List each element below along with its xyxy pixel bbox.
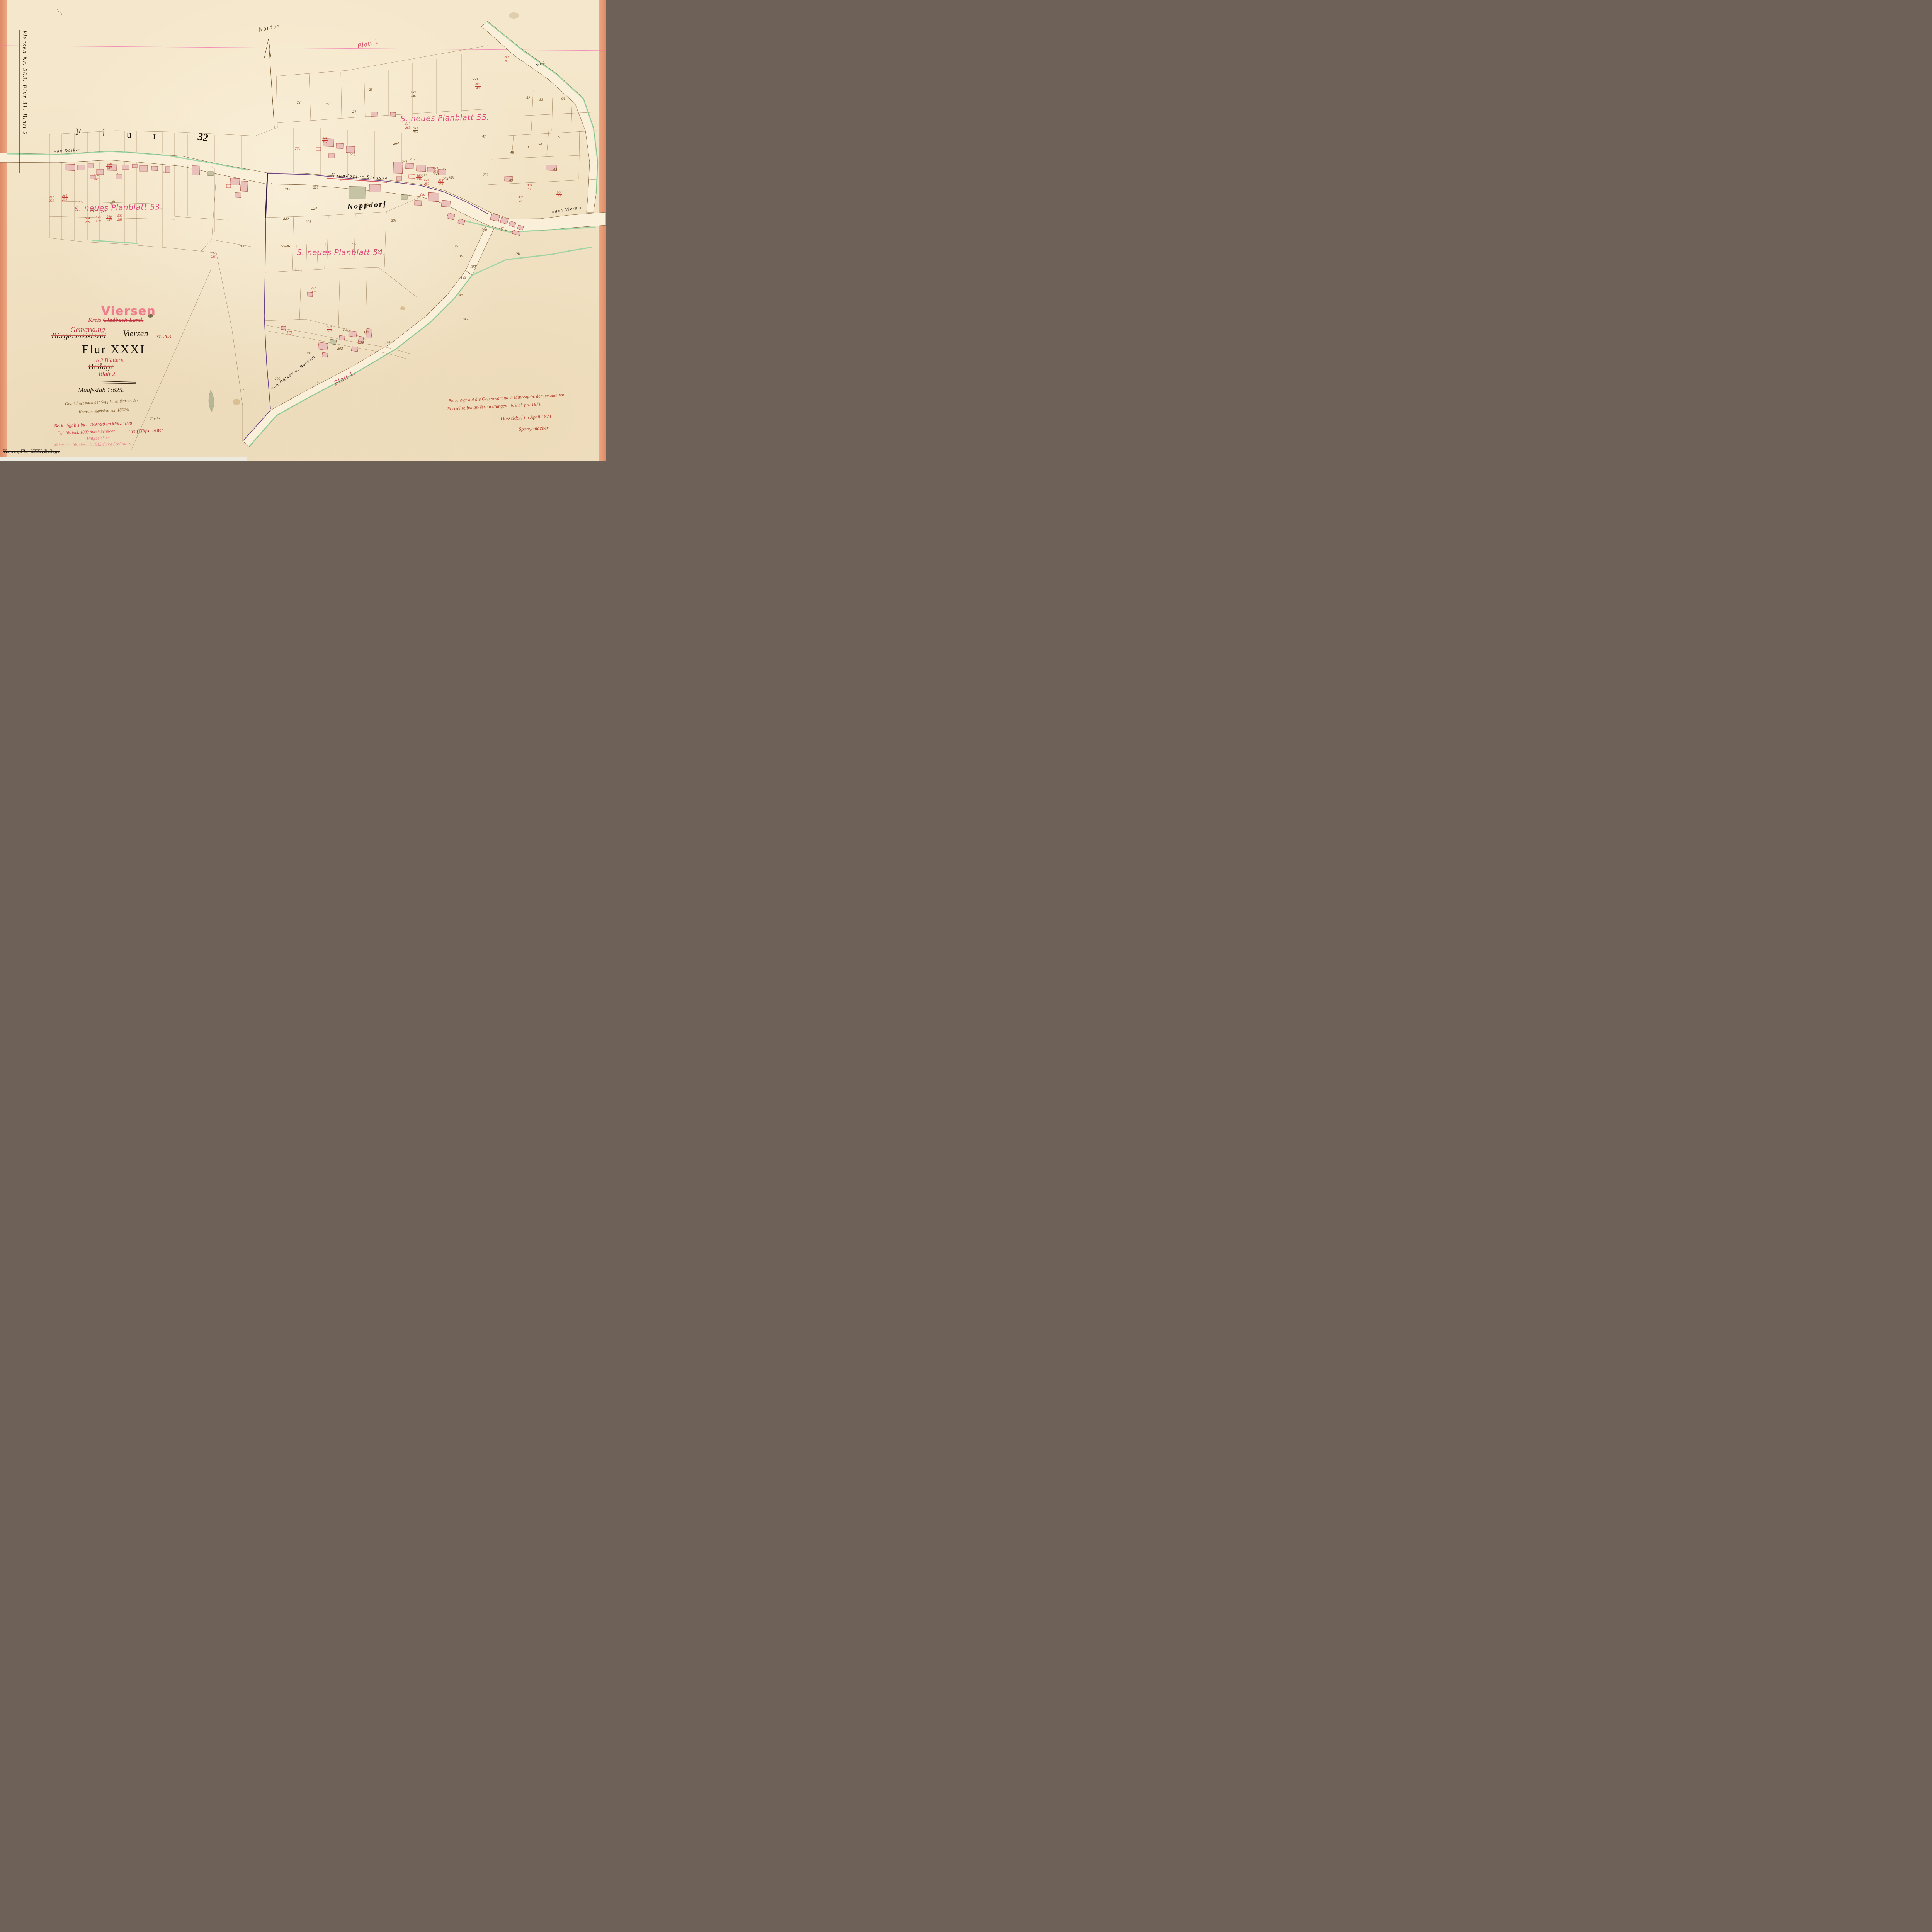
building xyxy=(88,164,94,168)
parcel-number: 59 xyxy=(556,136,560,140)
building xyxy=(132,164,137,168)
building xyxy=(390,112,396,117)
building xyxy=(351,347,358,352)
parcel-number: 547201 xyxy=(327,326,332,333)
parcel-number: × xyxy=(211,166,213,169)
pencil-scribble xyxy=(57,9,62,15)
parcel-number: 199 xyxy=(358,341,364,345)
parcel-number: 463213 xyxy=(322,137,328,144)
parcel-number: × xyxy=(440,190,442,193)
parcel-number: 219 xyxy=(285,188,290,192)
parcel-number: 49 xyxy=(509,179,513,183)
corner-archive-label: Viersen, Flur XXXI, Beilage xyxy=(3,448,60,454)
parcel-number: 209 xyxy=(275,378,280,381)
building xyxy=(349,331,357,337)
map-label-flur-number: 32 xyxy=(196,131,209,145)
building xyxy=(336,143,343,149)
parcel-number: 206 xyxy=(306,352,311,356)
building xyxy=(441,200,450,207)
parcel-number: 276 xyxy=(295,147,300,151)
nr-label: Nr. 203. xyxy=(155,334,173,340)
parcel-number: 214 xyxy=(239,245,244,249)
buergermeisterei-struck: Bürgermeisterei xyxy=(51,331,106,340)
parcel-number: × xyxy=(117,172,119,175)
scale-label: Maafsstab 1:625. xyxy=(78,386,124,394)
parcel-number: 526259 xyxy=(424,178,430,185)
building xyxy=(371,112,378,117)
parcel-number: 289 xyxy=(78,201,83,205)
parcel-number: 196 xyxy=(385,342,390,345)
drawing-note-signature: Fuchs xyxy=(150,417,160,422)
blatt2-label: Blatt 2. xyxy=(99,371,117,378)
parcel-number: 23 xyxy=(326,103,330,107)
parcel-number: × xyxy=(283,379,285,382)
building xyxy=(393,162,403,174)
parcel-number: 255 xyxy=(442,168,447,172)
building xyxy=(192,166,200,175)
parcel-number: 51 xyxy=(526,146,529,150)
parcel-number: 192 xyxy=(453,245,458,249)
parcel-number: 194 xyxy=(457,294,463,298)
building xyxy=(151,166,158,171)
building xyxy=(165,167,170,173)
parcel-number: 517265 xyxy=(405,122,411,129)
building xyxy=(230,178,240,185)
parcel-number: 36357 xyxy=(527,184,532,190)
parcel-number: 559247 xyxy=(106,163,112,170)
buergermeisterei-label: Bürgermeisterei xyxy=(51,331,106,341)
cadastral-map-sheet: Flur32NordenBlatt 1.Blatt 1.s. neues Pla… xyxy=(0,0,606,461)
parcel-number: 54 xyxy=(538,143,542,147)
parcel-number: 197 xyxy=(364,331,369,335)
parcel-number: 525258 xyxy=(438,179,444,186)
building xyxy=(346,146,355,153)
parcel-number: 524358 xyxy=(433,166,439,173)
parcel-number: 36146 xyxy=(518,196,524,202)
boundary-green xyxy=(8,22,598,446)
parcel-number: 202 xyxy=(337,347,343,351)
parcel-number: 190 xyxy=(470,265,476,269)
building xyxy=(77,165,85,170)
parcel-number: 282 xyxy=(101,211,106,214)
building xyxy=(322,352,328,357)
building xyxy=(349,187,366,199)
parcel-number: 367239 xyxy=(49,195,54,202)
parcel-number: 258 xyxy=(433,173,439,177)
parcel-number: 290 xyxy=(481,229,487,233)
parcel-number: 52 xyxy=(526,97,530,100)
margin-side-label: Viersen Nr. 203. Flur 31. Blatt 2. xyxy=(21,30,28,138)
parcel-number: 191 xyxy=(459,255,465,259)
parcel-number: 539283 xyxy=(117,214,123,221)
stain xyxy=(400,306,405,310)
ort-label: Viersen xyxy=(123,328,148,338)
building xyxy=(140,165,148,171)
building xyxy=(409,174,415,179)
parcel-number: 550 xyxy=(472,78,478,82)
parcel-number: 254 xyxy=(443,178,448,182)
parcel-number: 36457 xyxy=(556,191,562,198)
building xyxy=(287,331,292,335)
parcel-number: 269 xyxy=(350,154,355,158)
parcel-number: 540283 xyxy=(106,215,112,222)
parcel-number: 22 xyxy=(297,101,301,105)
parcel-number: 743236 xyxy=(210,251,216,258)
parcel-number: × xyxy=(317,381,319,384)
building xyxy=(458,219,465,225)
map-label-planblatt54: S. neues Planblatt 54. xyxy=(297,248,386,257)
parcel-number: 225 xyxy=(306,221,311,224)
building xyxy=(240,181,248,192)
beilage-struck: Beilage xyxy=(88,362,114,372)
parcel-number: 556247 xyxy=(94,173,99,180)
parcel-number: 218 xyxy=(313,186,318,190)
parcel-number: 366239 xyxy=(62,194,68,201)
parcel-number: 222 xyxy=(373,250,379,254)
building xyxy=(316,147,321,151)
parcel-number: × xyxy=(270,182,272,185)
map-label-planblatt53: s. neues Planblatt 53. xyxy=(75,202,163,213)
building xyxy=(122,165,129,170)
building xyxy=(396,177,402,180)
parcel-number: 262 xyxy=(410,158,415,162)
kreis-struck: Gladbach-Land. xyxy=(103,317,143,323)
parcel-number: 535259 xyxy=(95,216,101,223)
parcel-number: 217246 xyxy=(413,127,418,134)
building xyxy=(318,342,328,350)
building xyxy=(208,172,213,176)
parcel-number: 184 xyxy=(515,253,520,257)
parcel-number: 48 xyxy=(510,151,514,155)
blatt2-underline xyxy=(97,381,136,384)
kreis-line: Kreis Gladbach-Land. xyxy=(88,317,143,324)
parcel-number: 534259 xyxy=(85,216,90,223)
parcel-number: 43 xyxy=(553,168,557,172)
parcel-number: 777202 xyxy=(311,286,316,293)
parcel-number: 46546 xyxy=(475,83,481,90)
north-arrow xyxy=(264,39,274,128)
parcel-number: 236 xyxy=(420,193,425,197)
parcel-number: 223 xyxy=(280,245,285,249)
parcel-number: 253246 xyxy=(410,90,416,97)
road-noppdorfer-strasse xyxy=(0,151,606,231)
parcel-number: 200 xyxy=(343,328,348,332)
parcel-number: 29945 xyxy=(503,55,509,62)
parcel-number: 545211 xyxy=(281,325,287,332)
parcel-number: 264 xyxy=(393,142,399,146)
stain xyxy=(509,12,519,19)
building xyxy=(235,193,241,198)
parcel-number: 203 xyxy=(391,219,396,223)
map-label-planblatt55: S. neues Planblatt 55. xyxy=(400,112,489,123)
building xyxy=(417,165,426,172)
parcel-number: 53 xyxy=(539,99,543,102)
building xyxy=(369,184,380,192)
parcel-number: × xyxy=(340,179,342,182)
parcel-number: 60 xyxy=(561,98,565,102)
road-von-duelken-bockert xyxy=(243,270,472,447)
parcel-number: 220 xyxy=(283,218,289,221)
building xyxy=(339,335,345,340)
parcel-number: 261 xyxy=(402,161,407,165)
building xyxy=(447,213,455,220)
parcel-number: × xyxy=(406,182,408,185)
kreis-prefix: Kreis xyxy=(88,317,103,323)
viersen-stamp: Viersen xyxy=(101,304,156,318)
parcel-number: 232 xyxy=(364,203,369,207)
parcel-number: 25 xyxy=(369,88,373,92)
building xyxy=(328,154,335,158)
stain xyxy=(233,399,240,405)
parcel-number: 253 xyxy=(448,177,454,180)
parcel-number: 252 xyxy=(483,174,488,178)
parcel-number: 360259 xyxy=(416,174,422,181)
building xyxy=(428,192,439,201)
building xyxy=(330,339,337,345)
parcel-number: × xyxy=(243,388,245,391)
parcel-number: 283 xyxy=(90,210,95,214)
parcel-number: 259 xyxy=(422,175,427,179)
parcel-number: 193 xyxy=(461,276,466,280)
parcel-number: 24 xyxy=(352,111,356,114)
parcel-number: 224 xyxy=(311,207,317,211)
feather-doodle xyxy=(209,390,214,412)
building xyxy=(65,164,75,171)
parcel-number: 195 xyxy=(462,318,468,322)
parcel-number: 47 xyxy=(482,135,486,139)
flur-roman-title: Flur XXXI xyxy=(82,342,145,356)
building xyxy=(415,201,422,206)
parcel-number: 228 xyxy=(351,243,356,247)
parcel-number: × xyxy=(163,171,165,174)
building xyxy=(401,195,407,199)
